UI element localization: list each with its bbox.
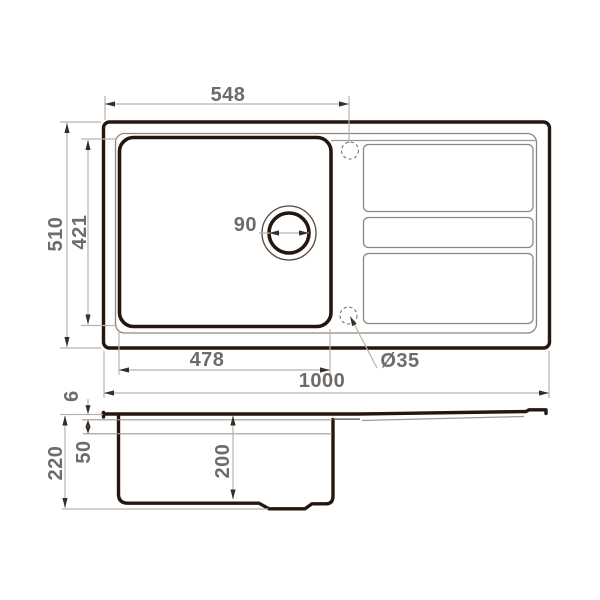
- dim-6: 6: [61, 390, 91, 414]
- dim-478-label: 478: [190, 349, 225, 371]
- dim-421: 421: [69, 139, 117, 326]
- dim-tap-hole: Ø35: [350, 316, 420, 372]
- sink-technical-drawing: 548 510 421 90 478 1000: [0, 0, 600, 600]
- section-rim-line: [103, 410, 546, 414]
- tap-hole-top-circle: [342, 142, 359, 159]
- sink-rim-inner-line: [116, 134, 537, 334]
- dim-90-label: 90: [234, 214, 257, 236]
- drainboard-ridge-2: [364, 218, 534, 248]
- dim-548-label: 548: [211, 84, 246, 106]
- dim-510-label: 510: [45, 217, 67, 252]
- dim-6-label: 6: [61, 390, 83, 402]
- drainboard-ridge-3: [364, 254, 534, 324]
- drawing-canvas: 548 510 421 90 478 1000: [0, 0, 600, 600]
- top-view: [104, 122, 550, 348]
- drainboard-ridge-1: [364, 145, 534, 212]
- side-view: [82, 410, 546, 509]
- dim-200: 200: [212, 416, 236, 500]
- dim-421-label: 421: [69, 215, 91, 250]
- dim-220-label: 220: [45, 446, 67, 481]
- sink-outer-outline: [104, 122, 550, 348]
- section-board-underside-line: [362, 417, 524, 421]
- dim-1000-label: 1000: [299, 370, 346, 392]
- dim-50: 50: [73, 420, 95, 464]
- dim-tap-hole-label: Ø35: [380, 350, 419, 372]
- dim-50-label: 50: [73, 440, 95, 463]
- dim-200-label: 200: [212, 444, 234, 479]
- dim-478: 478: [119, 329, 330, 375]
- dim-1000: 1000: [104, 351, 549, 398]
